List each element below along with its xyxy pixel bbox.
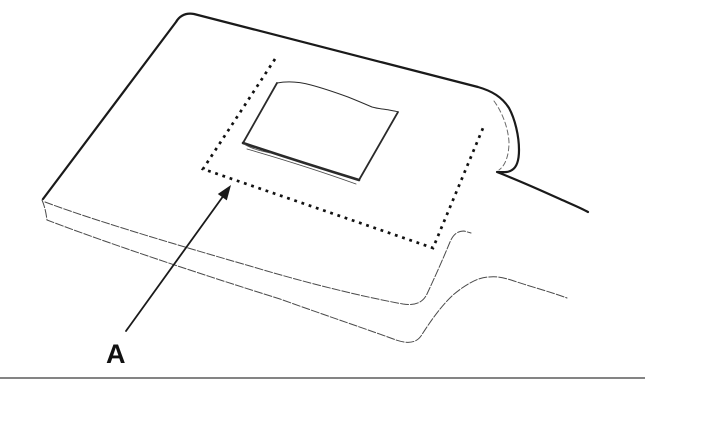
patch-right-edge <box>359 112 398 180</box>
pad-top-surface-outline <box>43 14 588 212</box>
pad-lower-rim-edge <box>42 200 567 342</box>
patch-bottom-edge <box>243 143 359 180</box>
dotted-region-border <box>203 59 483 248</box>
patch-left-edge <box>243 83 277 143</box>
patch-under-sheet-edge <box>247 149 356 184</box>
callout-arrowhead <box>218 185 231 200</box>
neck-hidden-edge <box>494 101 509 170</box>
callout-arrow-line <box>126 195 224 331</box>
pad-upper-rim-edge <box>45 202 471 305</box>
pad-diagram: A <box>0 0 724 438</box>
peeled-patch <box>243 82 398 184</box>
figure-canvas: A <box>0 0 724 438</box>
patch-wavy-top-edge <box>277 82 398 112</box>
callout-arrow <box>126 185 231 331</box>
callout-label-a: A <box>106 339 126 369</box>
